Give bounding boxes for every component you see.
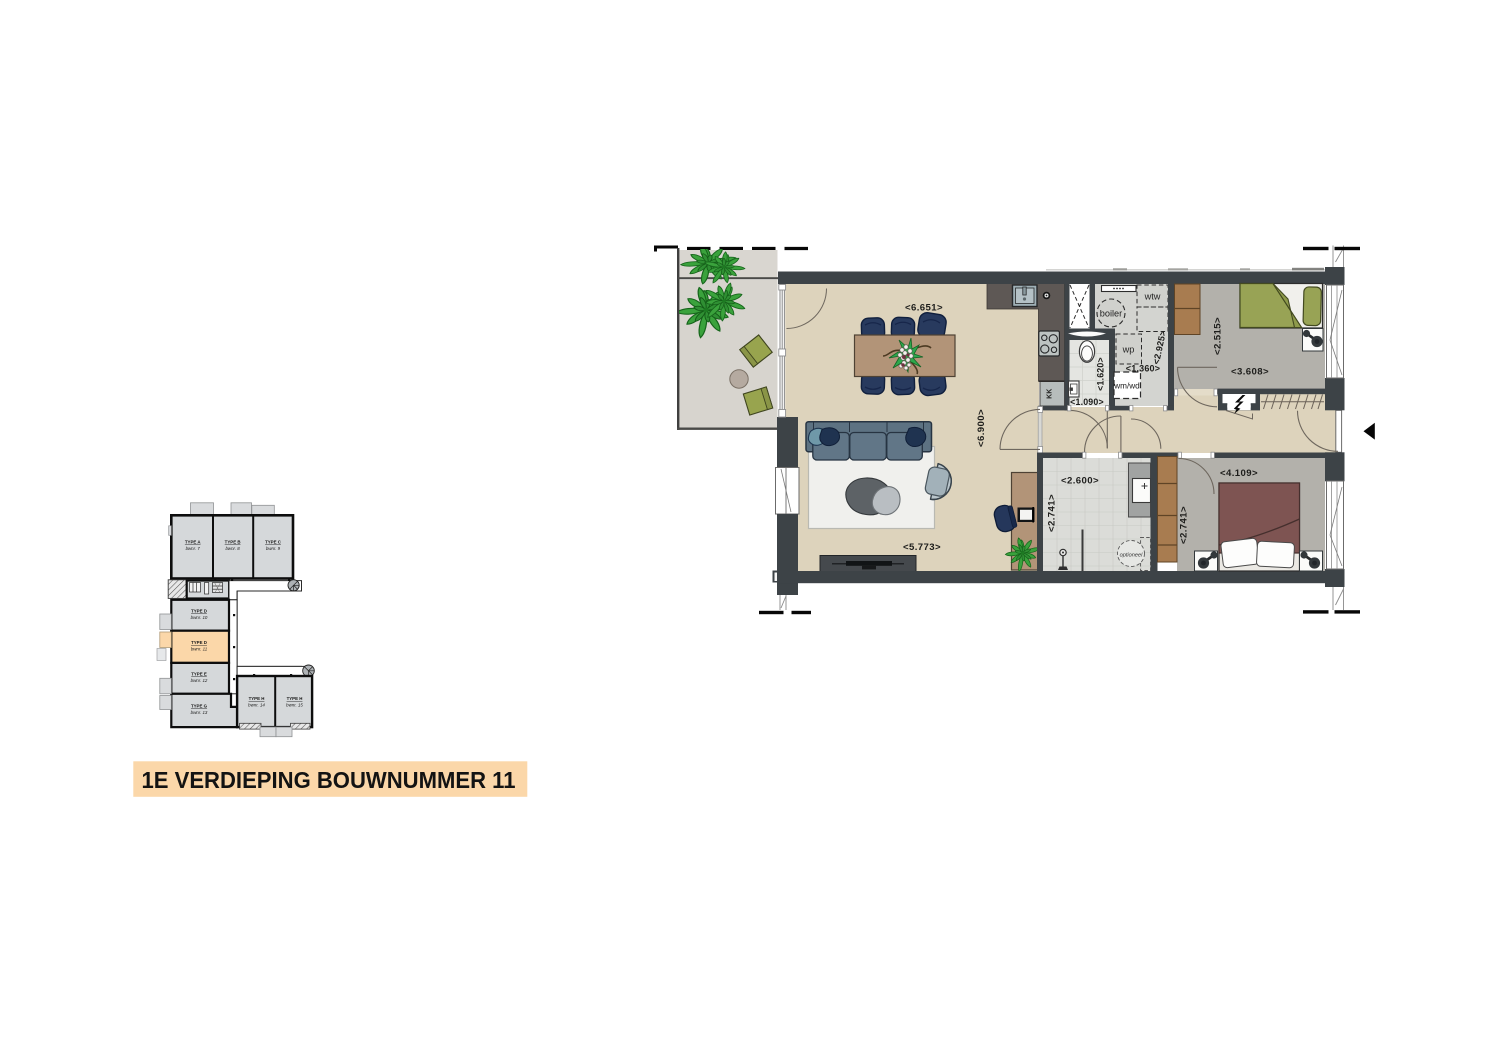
svg-text:TYPE E: TYPE E [191, 672, 207, 677]
svg-text:bwnr. 9: bwnr. 9 [266, 546, 281, 551]
svg-text:bwnr. 11: bwnr. 11 [191, 647, 208, 652]
svg-text:<1.090>: <1.090> [1070, 397, 1104, 407]
svg-text:wp: wp [1122, 345, 1135, 355]
svg-text:bwnr. 13: bwnr. 13 [191, 710, 208, 715]
svg-text:TYPE H: TYPE H [249, 696, 265, 701]
svg-text:bwnr. 7: bwnr. 7 [186, 546, 201, 551]
svg-text:boiler: boiler [1100, 309, 1122, 319]
svg-text:<2.741>: <2.741> [1179, 506, 1190, 544]
svg-text:<3.608>: <3.608> [1231, 367, 1269, 378]
svg-text:<5.773>: <5.773> [903, 542, 941, 553]
svg-text:KK: KK [1047, 389, 1054, 399]
svg-text:bwnr. 14: bwnr. 14 [248, 703, 265, 708]
svg-text:<4.109>: <4.109> [1220, 468, 1258, 479]
svg-text:TYPE G: TYPE G [191, 704, 208, 709]
svg-text:<2.600>: <2.600> [1061, 476, 1099, 487]
svg-text:<6.651>: <6.651> [905, 303, 943, 314]
svg-text:<1.620>: <1.620> [1096, 357, 1106, 391]
svg-text:bwnr. 8: bwnr. 8 [225, 546, 240, 551]
svg-text:TYPE C: TYPE C [265, 540, 282, 545]
svg-text:<2.741>: <2.741> [1047, 494, 1058, 532]
svg-text:bwnr. 15: bwnr. 15 [286, 703, 303, 708]
svg-text:1E VERDIEPING BOUWNUMMER 11: 1E VERDIEPING BOUWNUMMER 11 [142, 767, 516, 793]
svg-text:TYPE D: TYPE D [191, 640, 207, 645]
svg-text:wtw: wtw [1144, 292, 1161, 302]
svg-text:TYPE A: TYPE A [185, 540, 202, 545]
svg-text:TYPE D: TYPE D [191, 609, 207, 614]
svg-text:wm/wd: wm/wd [1113, 382, 1140, 391]
svg-text:bwnr. 12: bwnr. 12 [191, 678, 208, 683]
svg-text:optioneel: optioneel [1120, 553, 1143, 559]
svg-text:<6.900>: <6.900> [976, 409, 987, 447]
svg-text:TYPE H: TYPE H [287, 696, 303, 701]
svg-text:TYPE B: TYPE B [225, 540, 241, 545]
svg-text:bwnr. 10: bwnr. 10 [191, 615, 208, 620]
svg-text:<2.515>: <2.515> [1213, 317, 1224, 355]
